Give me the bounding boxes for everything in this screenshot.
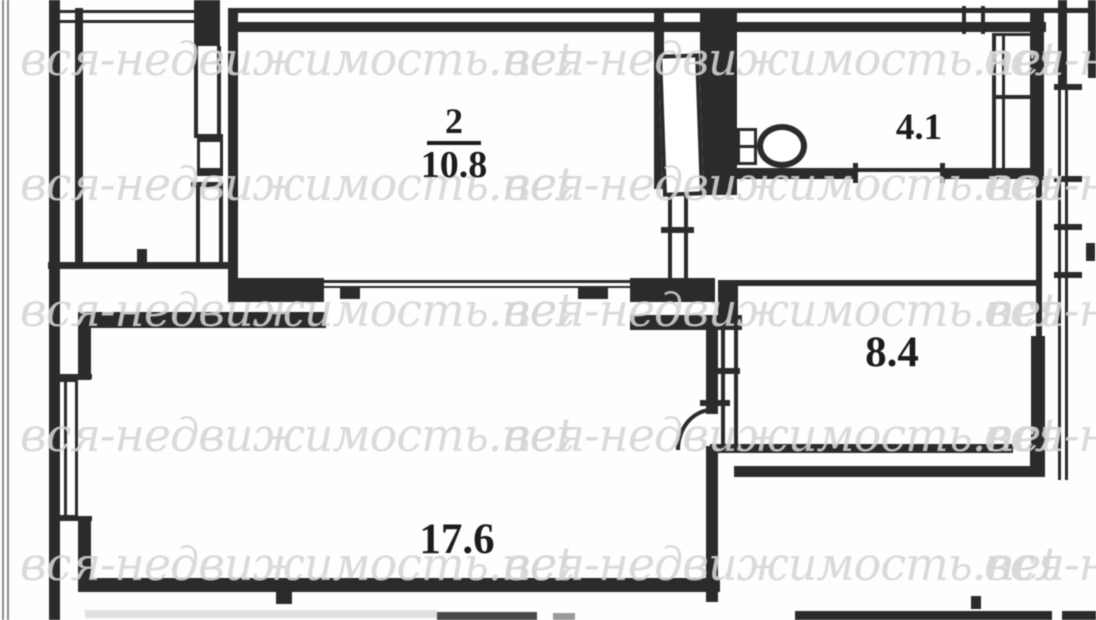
floorplan-image: вся-недвижимость.net вся-недвижимость.ne… <box>0 0 1096 620</box>
living-area-label: 17.6 <box>396 515 518 564</box>
labels-layer: 2 10.8 4.1 8.4 17.6 <box>0 0 1096 620</box>
bathroom-area-label: 4.1 <box>866 106 972 149</box>
room84-area-label: 8.4 <box>834 328 950 377</box>
room2-number: 2 <box>445 104 463 138</box>
room2-area: 10.8 <box>421 147 488 183</box>
room2-label: 2 10.8 <box>398 104 510 183</box>
